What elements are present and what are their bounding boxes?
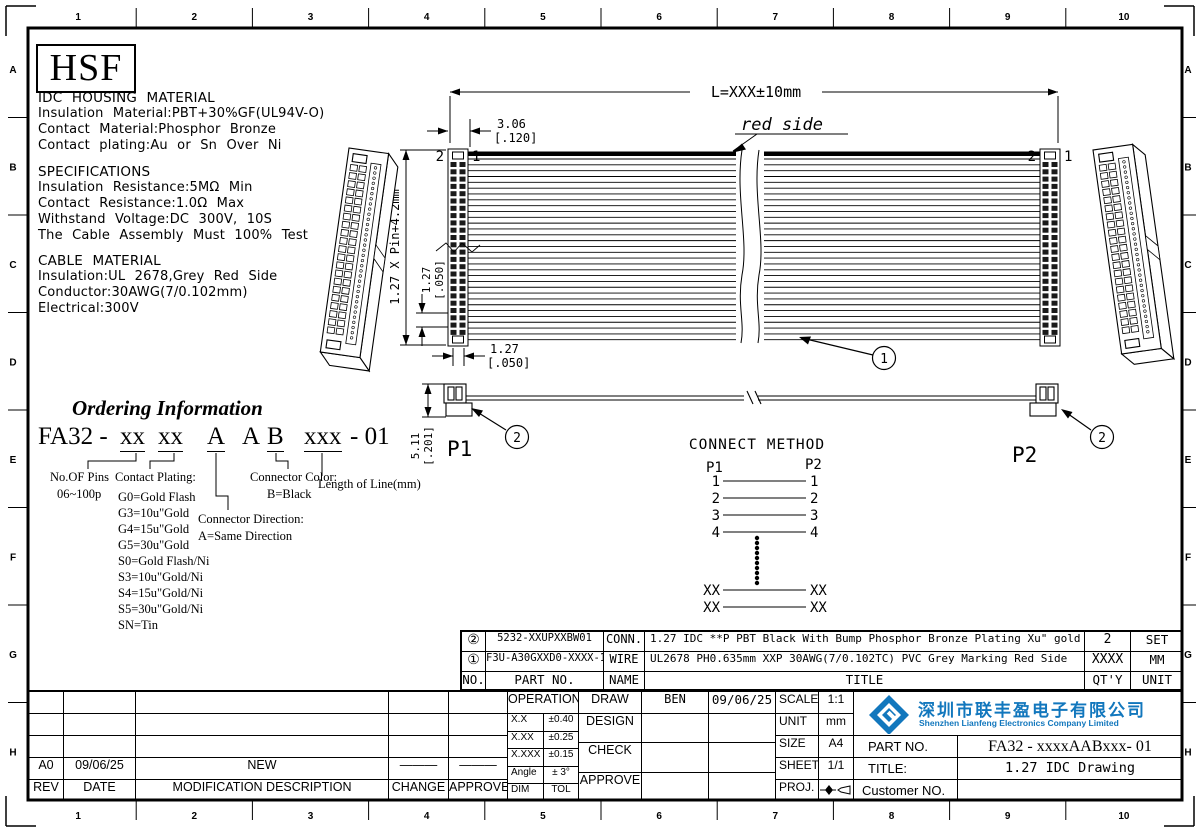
connect-method-title: CONNECT METHOD	[689, 437, 825, 453]
svg-text:8: 8	[889, 811, 895, 822]
parts-header: UNIT	[1130, 671, 1183, 691]
pins-label: No.OF Pins	[50, 470, 109, 485]
parts-header: NAME	[603, 671, 644, 691]
parts-name: CONN.	[603, 631, 644, 651]
cm-wire-xx: XX	[703, 583, 720, 599]
parts-part: F3U-A30GXXD0-XXXX-1	[485, 651, 603, 671]
signoff-date	[708, 713, 775, 742]
cm-wire-no: 3	[810, 508, 818, 524]
revision-cell	[63, 691, 135, 713]
plating-label: Contact Plating:	[115, 470, 196, 485]
cm-wire-xx: XX	[810, 600, 827, 616]
tolerance-tol: TOL	[543, 783, 578, 801]
info-label: SHEET	[775, 757, 818, 779]
svg-text:8: 8	[889, 12, 895, 23]
revision-cell	[448, 691, 507, 713]
plating-option: S5=30u"Gold/Ni	[118, 602, 203, 617]
signoff-label: CHECK	[578, 742, 641, 771]
revision-cell	[388, 735, 448, 757]
svg-text:G: G	[1184, 650, 1192, 661]
part-no-label: PART NO.	[853, 735, 957, 757]
dim-511-inch: [.201]	[422, 426, 435, 466]
svg-text:9: 9	[1005, 12, 1011, 23]
ordering-code-suffix: - 01	[350, 423, 390, 451]
title-block: 深圳市联丰盈电子有限公司 Shenzhen Lianfeng Electroni…	[28, 690, 1182, 800]
cable-material-title: CABLE MATERIAL	[38, 253, 161, 269]
parts-no: ②	[461, 631, 485, 651]
tolerance-tol: ±0.15	[543, 748, 578, 766]
pin2-label: 2	[1028, 149, 1036, 165]
revision-cell	[388, 713, 448, 735]
revision-cell	[28, 691, 63, 713]
revision-cell: 09/06/25	[63, 757, 135, 779]
company-logo-cell: 深圳市联丰盈电子有限公司 Shenzhen Lianfeng Electroni…	[853, 691, 1182, 735]
tolerance-dim: X.XX	[507, 731, 543, 749]
svg-text:A: A	[1184, 65, 1191, 76]
revision-cell	[135, 713, 388, 735]
p2-label: P2	[1012, 443, 1037, 467]
svg-text:10: 10	[1118, 811, 1130, 822]
svg-text:3: 3	[308, 12, 314, 23]
info-value: A4	[818, 735, 853, 757]
company-logo-icon	[866, 694, 912, 734]
spec-line: Electrical:300V	[38, 301, 139, 316]
plating-option: S4=15u"Gold/Ni	[118, 586, 203, 601]
dim-127-bottom: 1.27	[490, 342, 519, 356]
revision-cell: MODIFICATION DESCRIPTION	[135, 779, 388, 801]
revision-cell	[448, 735, 507, 757]
svg-text:B: B	[1184, 162, 1191, 173]
parts-title: 1.27 IDC **P PBT Black With Bump Phospho…	[644, 631, 1084, 651]
p2-connector-side	[1036, 384, 1058, 403]
cm-wire-no: 4	[712, 525, 720, 541]
svg-text:A: A	[9, 65, 16, 76]
cable-assembly-front-view	[436, 149, 1060, 346]
tolerance-dim: X.X	[507, 713, 543, 731]
pin1-label: 1	[472, 149, 480, 165]
signoff-date	[708, 742, 775, 771]
dim-306: 3.06	[497, 117, 526, 131]
balloon-2-number: 2	[1098, 431, 1106, 446]
svg-text:7: 7	[773, 811, 779, 822]
cm-wire-no: 3	[712, 508, 720, 524]
info-label: PROJ.	[775, 779, 818, 801]
length-label: Length of Line(mm)	[318, 477, 421, 492]
signoff-label: DRAW	[578, 691, 641, 713]
parts-header: QT'Y	[1084, 671, 1130, 691]
svg-text:6: 6	[656, 12, 662, 23]
ordering-seg-color: B	[267, 423, 284, 452]
spec-line: Conductor:30AWG(7/0.102mm)	[38, 285, 248, 300]
cm-wire-xx: XX	[703, 600, 720, 616]
spec-line: Contact plating:Au or Sn Over Ni	[38, 138, 282, 153]
revision-cell: APPROVE	[448, 779, 507, 801]
revision-cell	[448, 713, 507, 735]
customer-no-label: Customer NO.	[853, 779, 957, 801]
spec-line: Contact Material:Phosphor Bronze	[38, 122, 276, 137]
plating-option: SN=Tin	[118, 618, 158, 633]
svg-text:C: C	[1184, 260, 1191, 271]
revision-cell: ———	[448, 757, 507, 779]
revision-cell: DATE	[63, 779, 135, 801]
dim-127-inch: [.050]	[433, 260, 446, 300]
customer-no-value	[957, 779, 1182, 801]
signoff-name	[641, 772, 708, 801]
plating-option: G3=10u"Gold	[118, 506, 189, 521]
info-value: 1:1	[818, 691, 853, 713]
specifications-title: SPECIFICATIONS	[38, 164, 150, 180]
title-value: 1.27 IDC Drawing	[957, 757, 1182, 779]
svg-text:G: G	[9, 650, 17, 661]
revision-cell	[135, 691, 388, 713]
spec-line: Insulation Material:PBT+30%GF(UL94V-O)	[38, 106, 324, 121]
direction-label: Connector Direction:	[198, 512, 304, 527]
pins-range: 06~100p	[57, 487, 101, 502]
spec-line: Withstand Voltage:DC 300V, 10S	[38, 212, 272, 227]
spec-line: The Cable Assembly Must 100% Test	[38, 228, 308, 243]
pin2-label: 2	[436, 149, 444, 165]
isometric-connector-right	[1093, 143, 1174, 366]
cm-wire-no: 2	[712, 491, 720, 507]
svg-text:3: 3	[308, 811, 314, 822]
info-value: 1/1	[818, 757, 853, 779]
spec-line: Insulation:UL 2678,Grey Red Side	[38, 269, 277, 284]
revision-cell	[28, 735, 63, 757]
ribbon-cable-lines	[468, 159, 1040, 340]
cm-wire-xx: XX	[810, 583, 827, 599]
signoff-label: APPROVE	[578, 772, 641, 801]
svg-text:B: B	[9, 162, 16, 173]
tolerance-tol: ±0.40	[543, 713, 578, 731]
plating-option: S0=Gold Flash/Ni	[118, 554, 209, 569]
tolerance-tol: ± 3°	[543, 766, 578, 784]
signoff-date: 09/06/25	[708, 691, 775, 713]
parts-qty: 2	[1084, 631, 1130, 651]
spec-line: Insulation Resistance:5MΩ Min	[38, 180, 253, 195]
direction-option: A=Same Direction	[198, 529, 292, 544]
svg-text:1: 1	[75, 811, 81, 822]
plating-option: S3=10u"Gold/Ni	[118, 570, 203, 585]
info-value: mm	[818, 713, 853, 735]
cm-continuation-dots	[755, 536, 759, 585]
revision-cell: NEW	[135, 757, 388, 779]
ordering-code-prefix: FA32 -	[38, 423, 108, 451]
parts-table: ②5232-XXUPXXBW01CONN.1.27 IDC **P PBT Bl…	[460, 630, 1182, 690]
plating-option: G4=15u"Gold	[118, 522, 189, 537]
color-option: B=Black	[267, 487, 312, 502]
parts-part: 5232-XXUPXXBW01	[485, 631, 603, 651]
info-label: SCALE	[775, 691, 818, 713]
hsf-logo: HSF	[36, 44, 136, 93]
svg-text:H: H	[9, 747, 16, 758]
cm-wire-no: 1	[712, 474, 720, 490]
revision-cell: A0	[28, 757, 63, 779]
balloon-callouts	[471, 337, 1114, 449]
red-side-stripe	[468, 152, 736, 157]
signoff-label: DESIGN	[578, 713, 641, 742]
svg-text:4: 4	[424, 12, 430, 23]
revision-cell: REV	[28, 779, 63, 801]
svg-text:2: 2	[192, 811, 198, 822]
info-label: UNIT	[775, 713, 818, 735]
part-no-value: FA32 - xxxxAABxxx- 01	[957, 735, 1182, 757]
ordering-seg-direction: A	[207, 423, 225, 452]
svg-text:4: 4	[424, 811, 430, 822]
length-dimension: L=XXX±10mm	[711, 83, 801, 101]
svg-text:9: 9	[1005, 811, 1011, 822]
revision-cell	[28, 713, 63, 735]
dim-127-bottom-inch: [.050]	[487, 356, 530, 370]
revision-cell: ———	[388, 757, 448, 779]
info-value	[818, 779, 853, 801]
parts-header: NO.	[461, 671, 485, 691]
revision-cell	[63, 735, 135, 757]
pin1-label: 1	[1064, 149, 1072, 165]
parts-header: TITLE	[644, 671, 1084, 691]
parts-header: PART NO.	[485, 671, 603, 691]
idc-housing-material-title: IDC HOUSING MATERIAL	[38, 90, 215, 106]
parts-unit: MM	[1130, 651, 1183, 671]
ordering-seg-plating: xx	[158, 423, 183, 452]
svg-text:7: 7	[773, 12, 779, 23]
signoff-name	[641, 713, 708, 742]
revision-cell	[135, 735, 388, 757]
svg-text:E: E	[10, 455, 17, 466]
balloon-1-number: 1	[880, 352, 888, 367]
red-side-stripe	[764, 152, 1040, 157]
ordering-seg-pins: xx	[120, 423, 145, 452]
red-side-label: red side	[741, 115, 823, 135]
info-label: SIZE	[775, 735, 818, 757]
engineering-drawing-sheet: 1122334455667788991010AABBCCDDEEFFGGHH	[0, 0, 1200, 832]
connect-method-diagram: CONNECT METHOD P1 P2 1 2 3 4 1 2 3 4 XX	[689, 437, 828, 616]
parts-name: WIRE	[603, 651, 644, 671]
ordering-seg-length: xxx	[304, 423, 342, 452]
cm-p2: P2	[805, 457, 822, 473]
p1-label: P1	[447, 437, 472, 461]
ordering-information-title: Ordering Information	[72, 396, 263, 421]
cable-break-curve	[740, 150, 744, 343]
svg-text:D: D	[1184, 357, 1191, 368]
cm-wire-no: 1	[810, 474, 818, 490]
cable-break-curve	[757, 150, 761, 343]
revision-cell	[388, 691, 448, 713]
tolerance-title: OPERATION	[507, 691, 578, 713]
plating-option: G0=Gold Flash	[118, 490, 196, 505]
dim-306-inch: [.120]	[494, 131, 537, 145]
svg-text:C: C	[9, 260, 16, 271]
svg-text:5: 5	[540, 12, 546, 23]
spec-line: Contact Resistance:1.0Ω Max	[38, 196, 244, 211]
cm-wire-no: 4	[810, 525, 818, 541]
svg-text:E: E	[1185, 455, 1192, 466]
title-label: TITLE:	[853, 757, 957, 779]
svg-text:5: 5	[540, 811, 546, 822]
parts-title: UL2678 PH0.635mm XXP 30AWG(7/0.102TC) PV…	[644, 651, 1084, 671]
balloon-2-number: 2	[513, 431, 521, 446]
svg-text:D: D	[9, 357, 16, 368]
svg-text:F: F	[1185, 552, 1191, 563]
plating-option: G5=30u"Gold	[118, 538, 189, 553]
cm-wire-no: 2	[810, 491, 818, 507]
svg-text:10: 10	[1118, 12, 1130, 23]
p1-connector-side	[444, 384, 466, 403]
revision-cell: CHANGE	[388, 779, 448, 801]
company-name-en: Shenzhen Lianfeng Electronics Company Li…	[919, 718, 1119, 728]
parts-unit: SET	[1130, 631, 1183, 651]
signoff-name: BEN	[641, 691, 708, 713]
dim-127: 1.27	[420, 267, 433, 294]
svg-text:H: H	[1184, 747, 1191, 758]
tolerance-dim: DIM	[507, 783, 543, 801]
cable-assembly-side-view	[444, 384, 1058, 416]
signoff-name	[641, 742, 708, 771]
tolerance-tol: ±0.25	[543, 731, 578, 749]
dim-511: 5.11	[409, 433, 422, 460]
svg-text:2: 2	[192, 12, 198, 23]
tolerance-dim: Angle	[507, 766, 543, 784]
ordering-seg-a2: A	[242, 423, 260, 451]
tolerance-dim: X.XXX	[507, 748, 543, 766]
svg-text:1: 1	[75, 12, 81, 23]
signoff-date	[708, 772, 775, 801]
parts-qty: XXXX	[1084, 651, 1130, 671]
revision-cell	[63, 713, 135, 735]
svg-text:F: F	[10, 552, 16, 563]
svg-text:6: 6	[656, 811, 662, 822]
parts-no: ①	[461, 651, 485, 671]
